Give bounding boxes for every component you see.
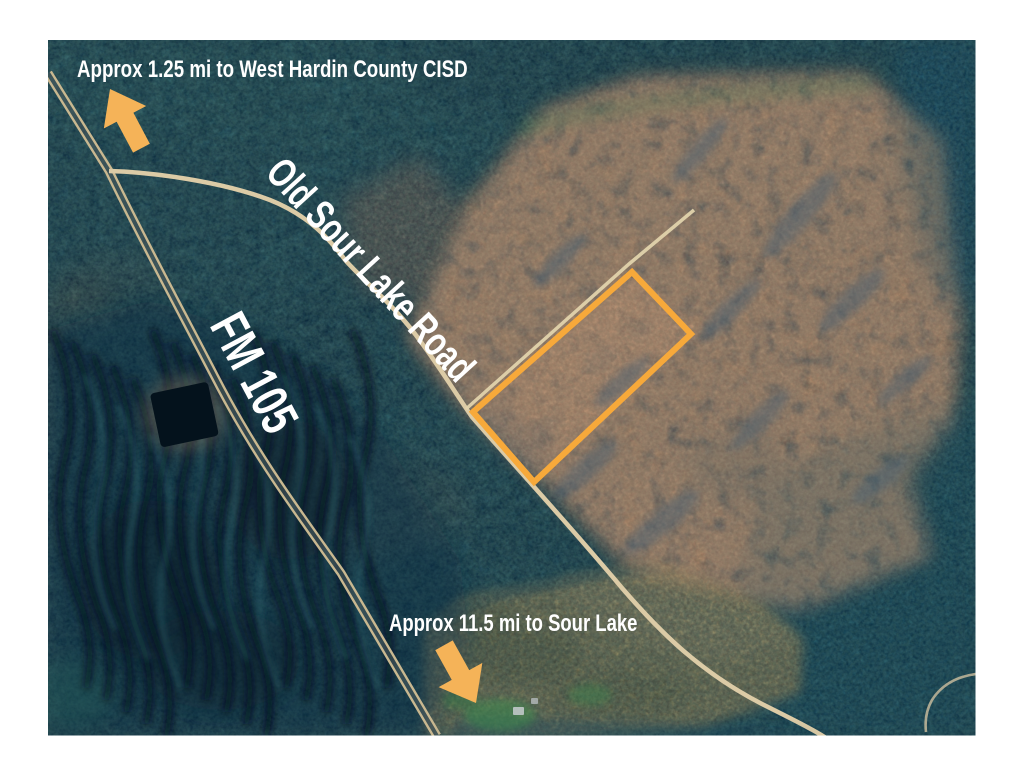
svg-text:Approx 11.5 mi to Sour Lake: Approx 11.5 mi to Sour Lake bbox=[389, 610, 637, 637]
svg-text:Approx 1.25 mi to West Hardin: Approx 1.25 mi to West Hardin County CIS… bbox=[77, 56, 468, 83]
